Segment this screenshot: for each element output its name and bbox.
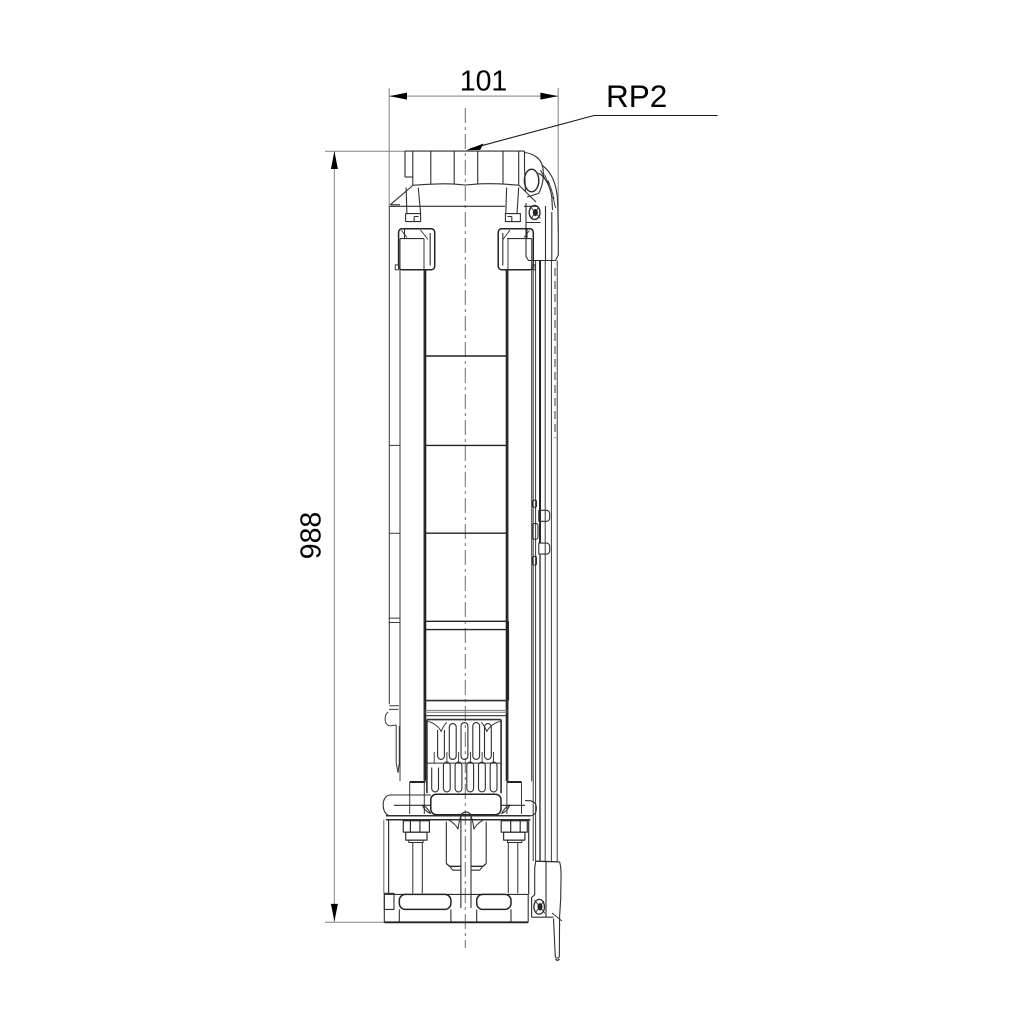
svg-text:101: 101 — [460, 65, 508, 97]
svg-text:RP2: RP2 — [606, 78, 667, 114]
svg-text:988: 988 — [295, 512, 327, 560]
